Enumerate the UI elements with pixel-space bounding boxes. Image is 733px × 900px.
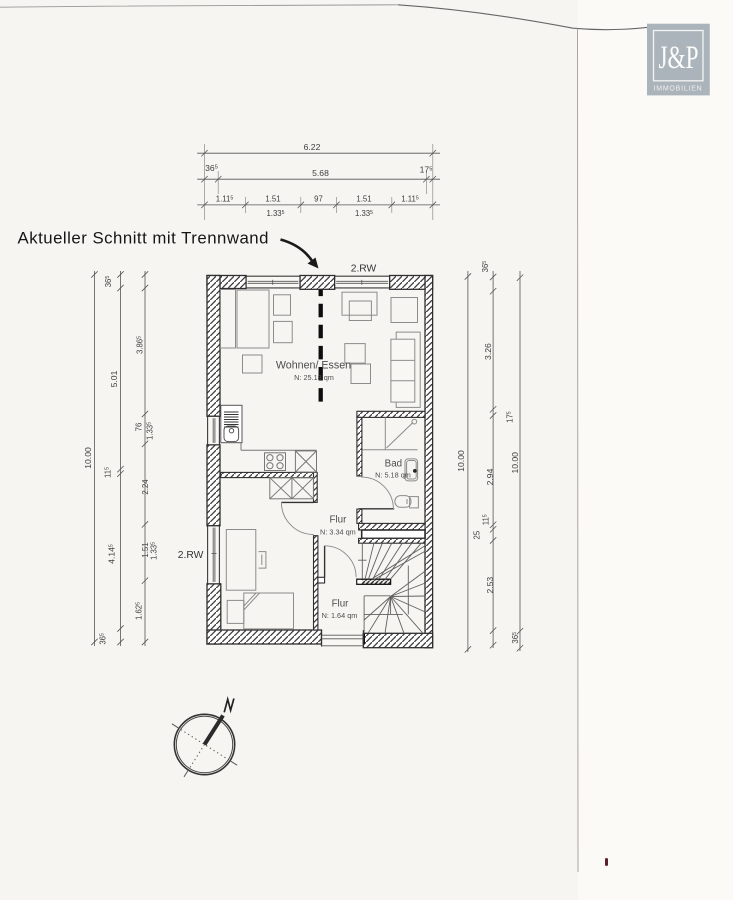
svg-text:N: 5.18 qm: N: 5.18 qm	[375, 470, 411, 479]
svg-text:1.51: 1.51	[356, 195, 371, 204]
svg-text:Aktueller Schnitt mit Trennwan: Aktueller Schnitt mit Trennwand	[18, 229, 269, 248]
svg-text:2.RW: 2.RW	[178, 550, 204, 561]
svg-text:IMMOBILIEN: IMMOBILIEN	[654, 85, 703, 92]
svg-text:3.26: 3.26	[483, 343, 493, 360]
svg-text:10.00: 10.00	[83, 447, 93, 469]
svg-text:N: 3.34 qm: N: 3.34 qm	[320, 527, 356, 536]
svg-text:N: 1.64 qm: N: 1.64 qm	[322, 611, 358, 620]
svg-text:10.00: 10.00	[456, 450, 466, 472]
svg-text:Bad: Bad	[385, 459, 402, 470]
svg-text:Flur: Flur	[329, 515, 347, 526]
svg-text:2.24: 2.24	[141, 479, 150, 495]
svg-text:2.RW: 2.RW	[351, 263, 377, 274]
svg-text:5.01: 5.01	[109, 370, 119, 387]
svg-text:N: 25.18 qm: N: 25.18 qm	[294, 373, 334, 382]
svg-text:1.51: 1.51	[265, 195, 280, 204]
svg-text:6.22: 6.22	[304, 142, 321, 152]
svg-text:J&P: J&P	[659, 40, 699, 76]
svg-text:25: 25	[473, 530, 482, 539]
svg-text:Flur: Flur	[332, 599, 350, 610]
svg-text:2.94: 2.94	[485, 468, 495, 485]
svg-text:5.68: 5.68	[312, 168, 329, 178]
svg-text:10.00: 10.00	[510, 452, 520, 474]
svg-text:97: 97	[314, 195, 323, 204]
svg-text:76: 76	[135, 423, 144, 432]
svg-text:2.53: 2.53	[485, 577, 495, 594]
svg-text:Wohnen/ Essen: Wohnen/ Essen	[276, 359, 351, 371]
